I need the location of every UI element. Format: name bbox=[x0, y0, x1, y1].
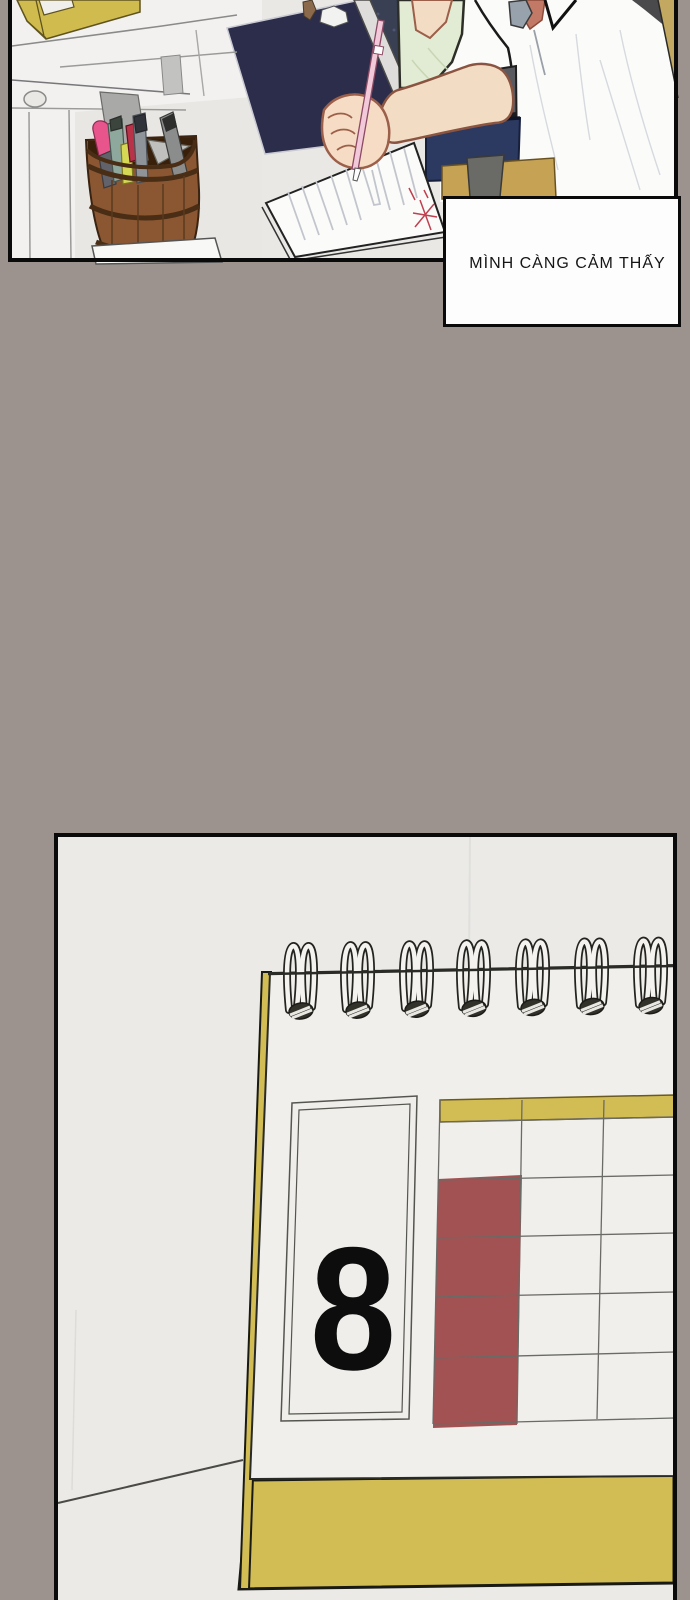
svg-text:8: 8 bbox=[310, 1211, 396, 1407]
